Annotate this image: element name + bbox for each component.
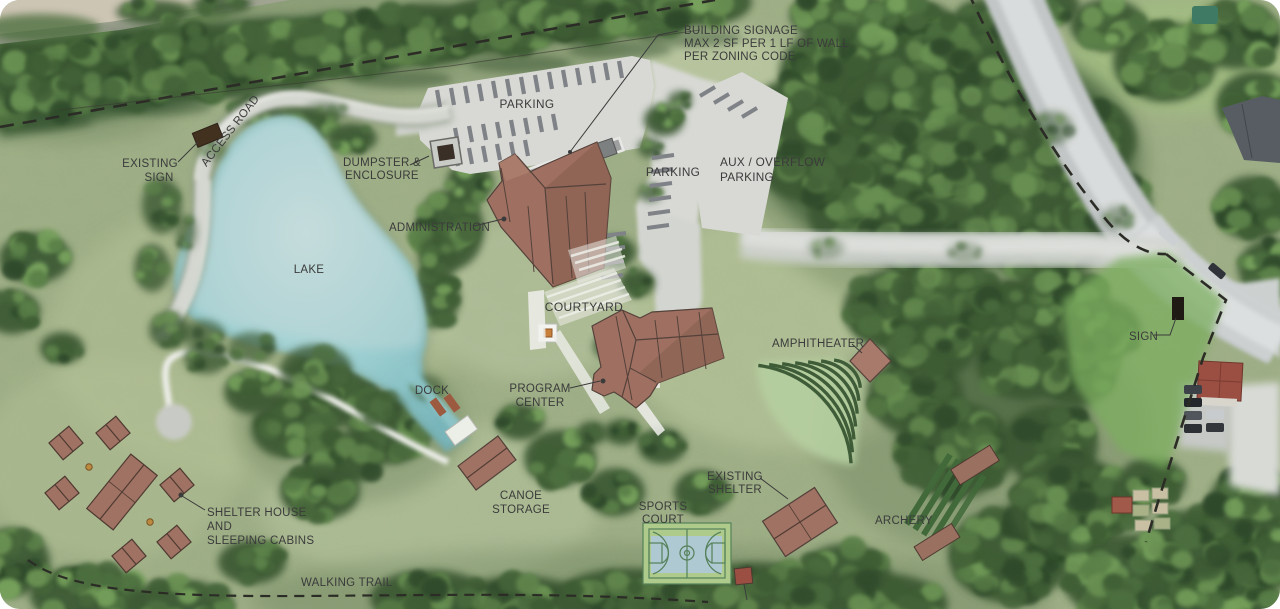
svg-text:STORAGE: STORAGE <box>492 504 550 516</box>
svg-text:COURTYARD: COURTYARD <box>545 300 624 314</box>
svg-text:ARCHERY: ARCHERY <box>875 515 933 527</box>
svg-text:EXISTING: EXISTING <box>707 471 763 483</box>
svg-text:SHELTER HOUSE: SHELTER HOUSE <box>207 507 307 519</box>
svg-text:CENTER: CENTER <box>516 397 565 409</box>
svg-text:DUMPSTER &: DUMPSTER & <box>343 157 421 169</box>
svg-text:DOCK: DOCK <box>415 385 449 397</box>
svg-text:PARKING: PARKING <box>499 97 554 111</box>
svg-text:SIGN: SIGN <box>144 172 173 184</box>
svg-text:SHELTER: SHELTER <box>708 484 762 496</box>
svg-text:PER ZONING CODE: PER ZONING CODE <box>684 51 796 63</box>
svg-text:PARKING: PARKING <box>720 170 774 184</box>
svg-text:COURT: COURT <box>642 514 684 526</box>
svg-text:AMPHITHEATER: AMPHITHEATER <box>772 338 864 350</box>
svg-text:LAKE: LAKE <box>294 264 324 276</box>
svg-text:AUX / OVERFLOW: AUX / OVERFLOW <box>720 155 826 169</box>
svg-text:SPORTS: SPORTS <box>639 501 688 513</box>
svg-text:PARKING: PARKING <box>646 165 700 179</box>
svg-text:BUILDING SIGNAGE: BUILDING SIGNAGE <box>684 25 798 37</box>
svg-text:ENCLOSURE: ENCLOSURE <box>345 170 419 182</box>
svg-text:MAX 2 SF PER 1 LF OF WALL: MAX 2 SF PER 1 LF OF WALL <box>684 38 849 50</box>
svg-text:SIGN: SIGN <box>1129 331 1158 343</box>
svg-text:WALKING TRAIL: WALKING TRAIL <box>301 577 393 589</box>
svg-text:AND: AND <box>207 521 232 533</box>
svg-text:PROGRAM: PROGRAM <box>509 383 570 395</box>
svg-text:ADMINISTRATION: ADMINISTRATION <box>389 222 490 234</box>
svg-text:CANOE: CANOE <box>500 490 542 502</box>
svg-text:EXISTING: EXISTING <box>122 158 178 170</box>
svg-text:SLEEPING CABINS: SLEEPING CABINS <box>207 535 314 547</box>
